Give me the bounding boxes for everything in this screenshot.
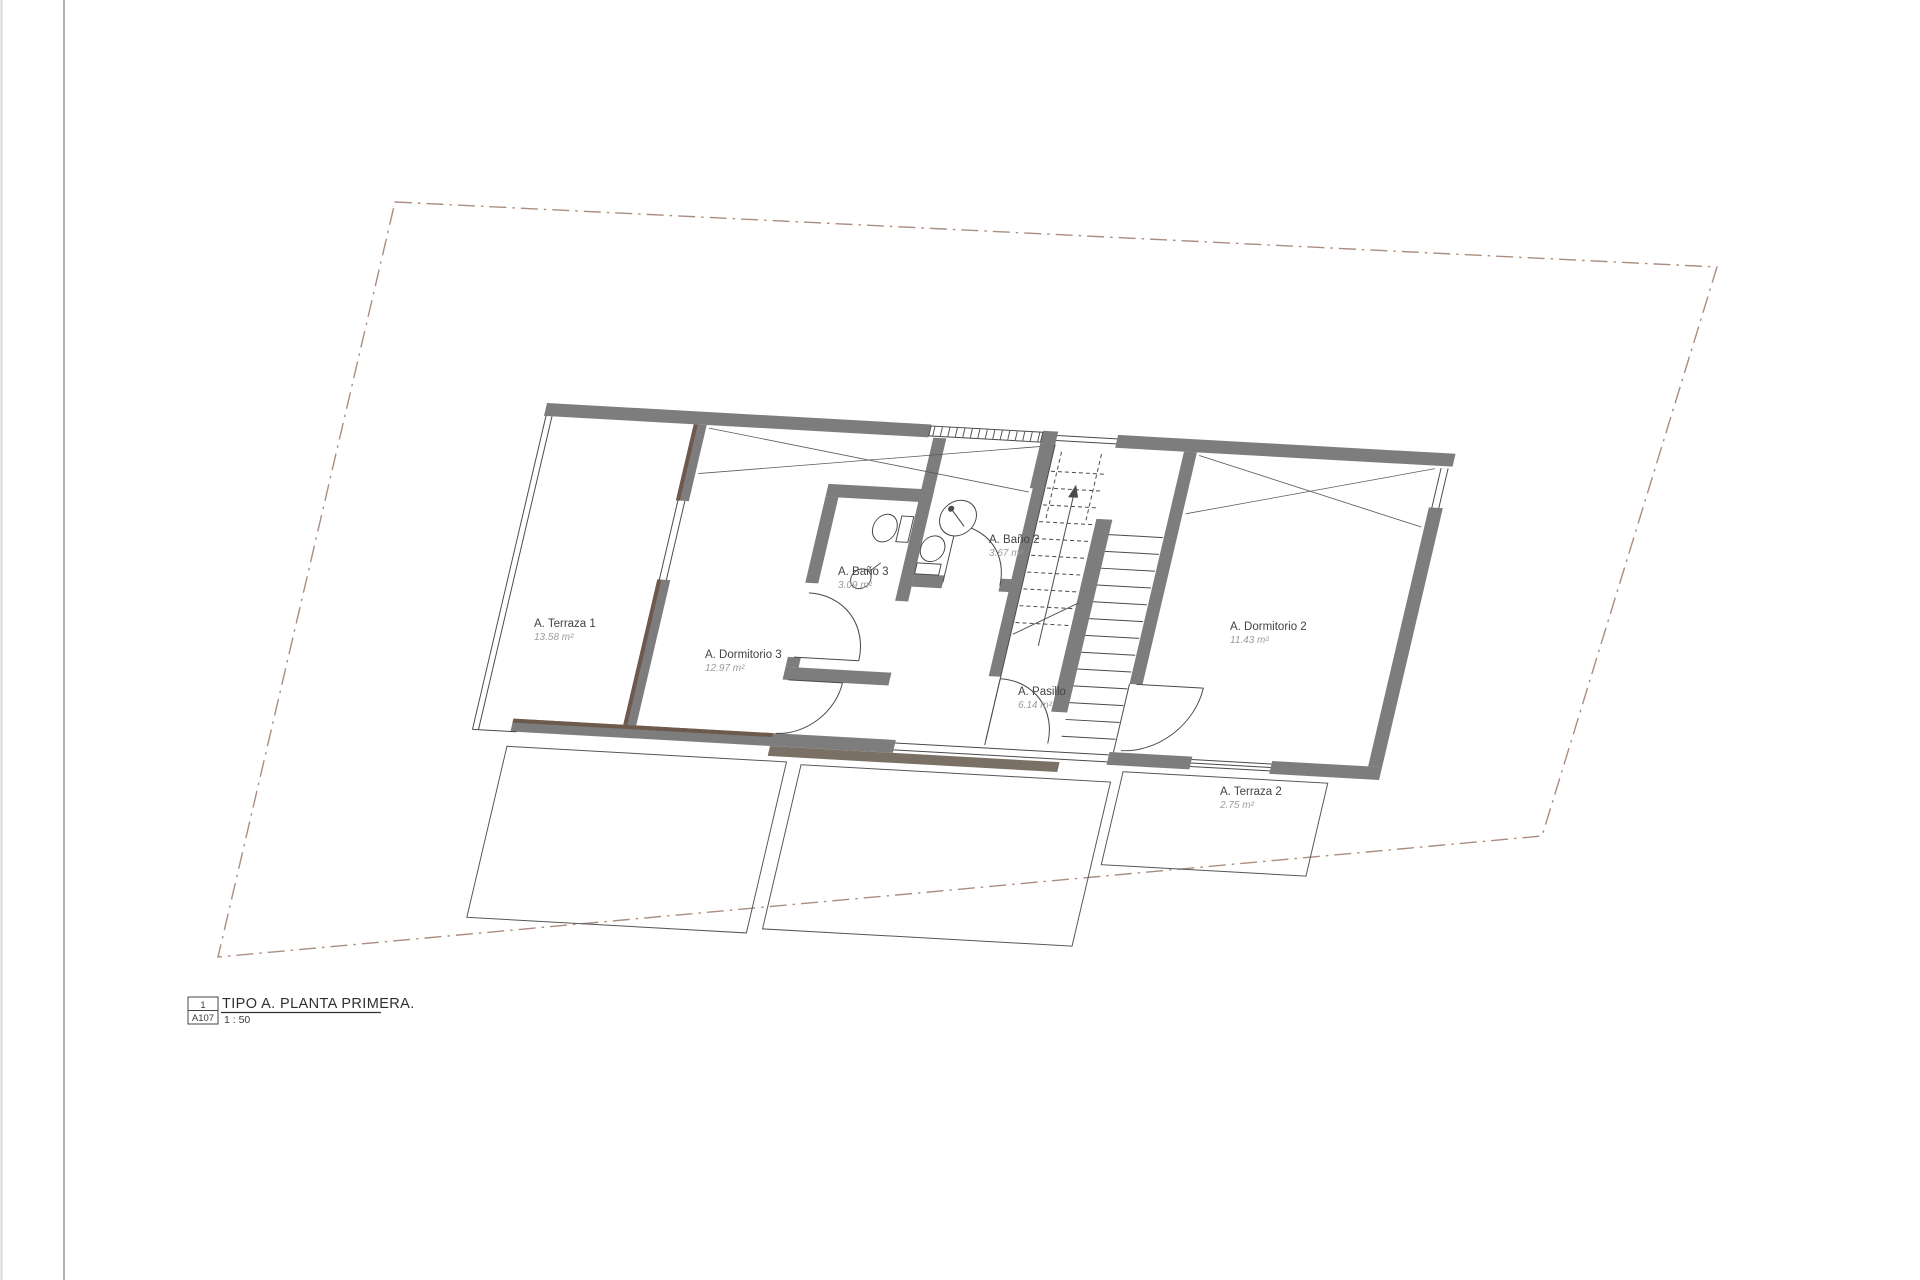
title-block: 1 A107 TIPO A. PLANTA PRIMERA. 1 : 50 xyxy=(188,996,415,1026)
svg-text:A. Baño 2: A. Baño 2 xyxy=(989,534,1040,546)
svg-text:13.58 m²: 13.58 m² xyxy=(534,632,574,643)
svg-text:A. Terraza 1: A. Terraza 1 xyxy=(534,618,596,630)
terrace-outline-middle xyxy=(763,765,1111,946)
terrace-outline-left xyxy=(467,746,787,933)
sheet-frame xyxy=(2,0,65,1280)
stair-arrow-head xyxy=(1068,484,1081,497)
sheet-number: A107 xyxy=(192,1013,214,1024)
svg-text:11.43 m²: 11.43 m² xyxy=(1230,635,1269,646)
svg-text:A. Baño 3: A. Baño 3 xyxy=(838,566,889,578)
toilet-icon xyxy=(915,563,942,575)
svg-text:A. Pasillo: A. Pasillo xyxy=(1018,686,1066,698)
svg-text:2.75 m²: 2.75 m² xyxy=(1219,800,1255,811)
room-label-terraza-1: A. Terraza 1 13.58 m² xyxy=(534,618,596,643)
walls xyxy=(468,403,1455,790)
drawing-sheet: A. Terraza 1 13.58 m² A. Dormitorio 3 12… xyxy=(0,0,1920,1280)
building-plan xyxy=(427,403,1456,966)
svg-text:6.14 m²: 6.14 m² xyxy=(1018,700,1053,711)
room-label-dormitorio-2: A. Dormitorio 2 11.43 m² xyxy=(1230,621,1307,646)
parcel-boundary-line xyxy=(218,202,1717,957)
window-span-diagonals xyxy=(695,428,1435,527)
drawing-title: TIPO A. PLANTA PRIMERA. xyxy=(222,996,415,1012)
lower-terraces xyxy=(467,737,1328,963)
floor-plan-canvas: A. Terraza 1 13.58 m² A. Dormitorio 3 12… xyxy=(0,0,1920,1280)
detail-number: 1 xyxy=(200,1000,205,1011)
svg-text:3.09 m²: 3.09 m² xyxy=(838,580,873,591)
room-label-dormitorio-3: A. Dormitorio 3 12.97 m² xyxy=(705,649,782,674)
drawing-scale: 1 : 50 xyxy=(224,1014,250,1026)
room-label-terraza-2: A. Terraza 2 2.75 m² xyxy=(1219,786,1282,811)
thin-lines xyxy=(472,407,1450,780)
svg-text:A. Dormitorio 3: A. Dormitorio 3 xyxy=(705,649,782,661)
svg-text:12.97 m²: 12.97 m² xyxy=(705,663,745,674)
stair-arrow-shaft xyxy=(1038,495,1073,646)
svg-text:A. Dormitorio 2: A. Dormitorio 2 xyxy=(1230,621,1307,633)
svg-text:A. Terraza 2: A. Terraza 2 xyxy=(1220,786,1282,798)
terrace-outline-terraza2 xyxy=(1101,772,1327,876)
svg-text:3.67 m²: 3.67 m² xyxy=(989,548,1024,559)
